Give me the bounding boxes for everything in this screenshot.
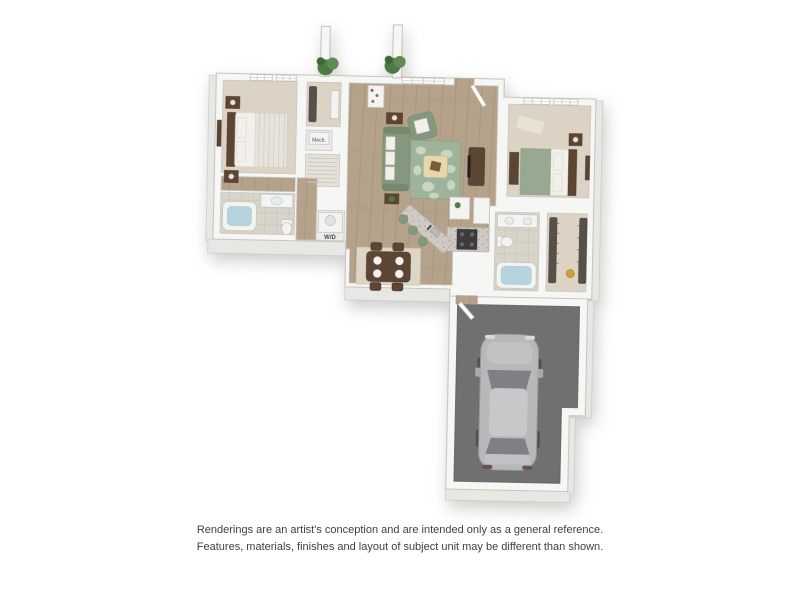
lamp <box>573 137 578 142</box>
dining-area <box>356 242 421 291</box>
floor-plan-rendering: Mech. W/D <box>0 0 800 600</box>
potted-plant <box>384 56 405 74</box>
car-headlight <box>485 335 495 339</box>
refrigerator <box>473 198 490 224</box>
sink <box>523 218 532 225</box>
sink <box>505 217 514 224</box>
plate <box>395 270 403 278</box>
area-rug <box>410 140 461 199</box>
disclaimer-line-2: Features, materials, finishes and layout… <box>0 539 800 556</box>
car-taillight <box>522 466 532 470</box>
footer-disclaimer: Renderings are an artist's conception an… <box>0 522 800 556</box>
garage-house-door-opening <box>456 295 478 304</box>
closet-shelf <box>330 91 339 119</box>
car-trunk <box>484 454 530 465</box>
car-rear-window <box>485 438 529 455</box>
bed-blanket <box>254 113 287 168</box>
tv-console <box>467 147 485 185</box>
car-taillight <box>482 465 492 469</box>
bed-pillow <box>237 142 246 162</box>
bookshelf <box>368 85 384 107</box>
bathtub-water <box>501 266 531 285</box>
porch <box>316 23 406 78</box>
wall-art <box>217 120 222 146</box>
coffee-table <box>423 155 447 177</box>
bed-pillow <box>553 153 562 170</box>
toilet <box>281 220 292 235</box>
sofa <box>382 127 410 192</box>
mech-closet: Mech. <box>309 132 329 144</box>
tv <box>467 155 470 177</box>
bed-pillow <box>237 118 246 138</box>
car-headlight <box>525 336 535 340</box>
sofa-pillow <box>386 137 395 150</box>
car-roof <box>489 388 528 437</box>
kitchen-counter <box>449 197 469 219</box>
hanging-clothes <box>308 86 317 122</box>
plate <box>373 269 381 277</box>
window <box>554 99 578 106</box>
side-table <box>385 194 399 204</box>
washer-door <box>325 215 335 225</box>
sofa-arm <box>382 184 409 192</box>
bar-stool <box>409 226 418 235</box>
car-mirror <box>537 369 543 378</box>
hanging-clothes <box>578 218 587 284</box>
dining-chair <box>370 282 381 290</box>
mech-label: Mech. <box>312 138 326 144</box>
bar-stool <box>418 237 427 246</box>
car-hood <box>486 342 532 365</box>
plate <box>373 256 381 264</box>
dining-table <box>366 251 411 282</box>
dresser <box>509 152 519 184</box>
toilet <box>497 236 513 247</box>
window <box>276 75 296 81</box>
hanging-clothes <box>548 217 557 283</box>
headboard <box>568 150 577 196</box>
bar-stool <box>399 214 408 223</box>
stove <box>457 229 477 249</box>
window <box>250 74 272 80</box>
wall-art <box>585 156 590 180</box>
lamp <box>392 115 397 120</box>
window <box>524 98 550 105</box>
headboard <box>226 112 235 166</box>
washer-dryer-label: W/D <box>324 235 336 241</box>
car-mirror <box>475 368 481 377</box>
sofa-pillow <box>385 167 394 180</box>
disclaimer-line-1: Renderings are an artist's conception an… <box>0 522 800 539</box>
bed-duvet <box>520 149 551 196</box>
lamp <box>229 174 234 179</box>
potted-plant <box>316 57 338 75</box>
armchair-pillow <box>414 118 430 134</box>
sofa-pillow <box>386 152 395 165</box>
car <box>473 334 544 471</box>
sofa-arm <box>383 127 410 135</box>
sink <box>271 197 282 205</box>
dining-chair <box>393 243 404 251</box>
window <box>402 78 444 85</box>
floorplan: Mech. W/D <box>201 21 605 503</box>
bed-pillow <box>553 174 562 191</box>
car-windshield <box>487 370 531 391</box>
lamp <box>230 100 235 105</box>
dining-chair <box>392 283 403 291</box>
dining-chair <box>371 242 382 250</box>
plate <box>395 257 403 265</box>
hallway-floor <box>296 178 317 240</box>
bathtub-water <box>227 206 251 225</box>
mirror <box>566 269 574 277</box>
